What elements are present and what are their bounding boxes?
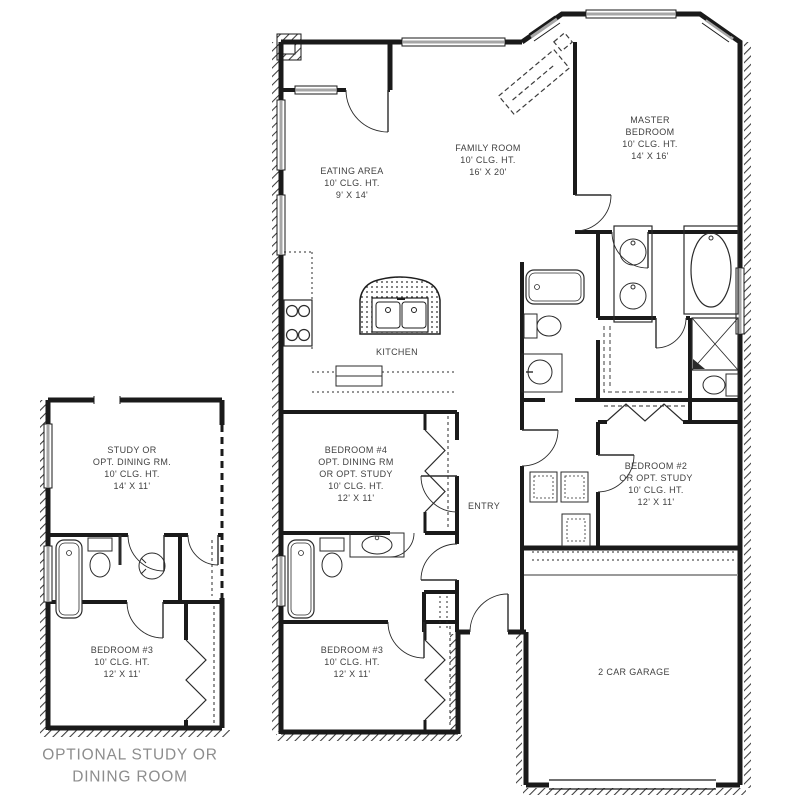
floor-plan-drawing: [0, 0, 800, 800]
range: [284, 300, 312, 346]
kitchen-island: [360, 277, 440, 334]
floor-plan-page: EATING AREA 10' CLG. HT. 9' X 14' FAMILY…: [0, 0, 800, 800]
opt-top-opening: [94, 395, 120, 404]
base-cabinet: [336, 366, 382, 386]
plan-caption: OPTIONAL STUDY OR DINING ROOM: [42, 744, 218, 787]
